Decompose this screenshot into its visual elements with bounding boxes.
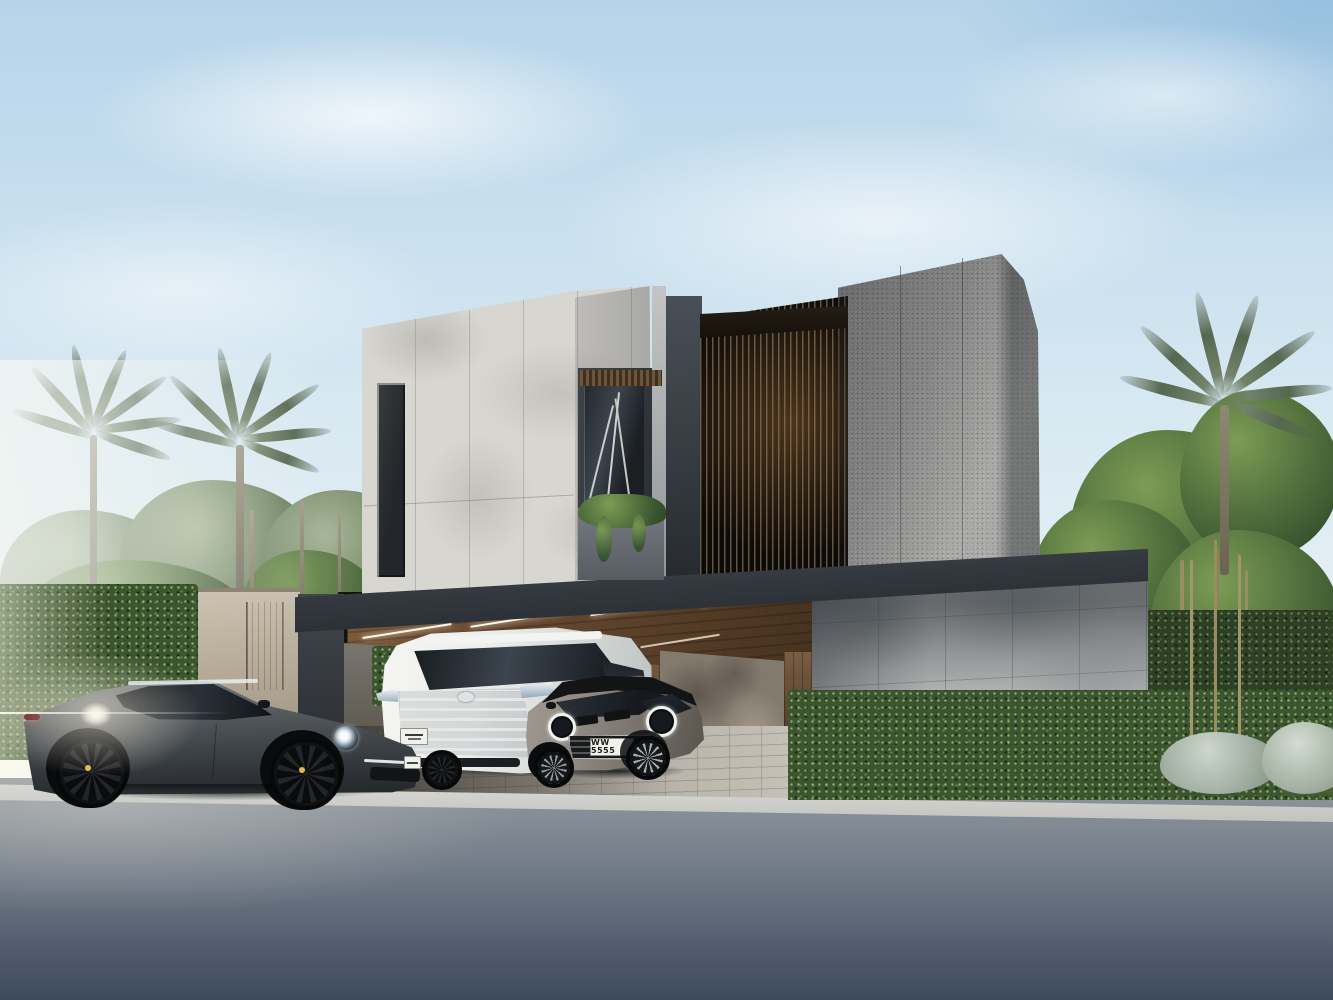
porsche-wheel-crest (299, 767, 305, 773)
bamboo-stem (1214, 540, 1217, 760)
cloud (90, 30, 650, 200)
porsche-headlight (334, 726, 358, 750)
mini-mirror (546, 702, 556, 709)
porsche-front-intake (370, 767, 421, 783)
slot-window (377, 383, 405, 577)
scene-villa-render: WW 5555 (0, 0, 1333, 1000)
palm-frond (1223, 396, 1318, 441)
mini-front-wheel (534, 748, 574, 788)
porsche-taillight (24, 714, 40, 720)
porsche-rocker-shadow (122, 784, 272, 792)
porsche-plate-sticker (404, 756, 421, 769)
porsche-rear-wheel (56, 736, 128, 808)
bamboo-stem (1238, 555, 1241, 760)
porsche-front-wheel (270, 738, 342, 810)
balcony-vine-trail (632, 514, 646, 552)
van-emblem (458, 692, 474, 702)
mini-rear-wheel (626, 736, 670, 780)
dark-wall-center (666, 296, 702, 596)
mini-hatchback: WW 5555 (512, 668, 722, 786)
porsche-mirror (258, 700, 270, 708)
slat-screen (700, 296, 848, 578)
porsche-wheel-crest (85, 765, 91, 771)
balcony-wood-soffit (580, 370, 662, 386)
balcony-vine-trail (596, 516, 612, 562)
bamboo-stem (1190, 560, 1193, 760)
balcony-vines (578, 494, 666, 528)
granite-shading (838, 254, 1040, 576)
palm-tree (1120, 320, 1330, 580)
porsche-coupe (18, 672, 448, 812)
porsche-plate-marks (407, 762, 418, 764)
palm-trunk (1220, 405, 1229, 575)
